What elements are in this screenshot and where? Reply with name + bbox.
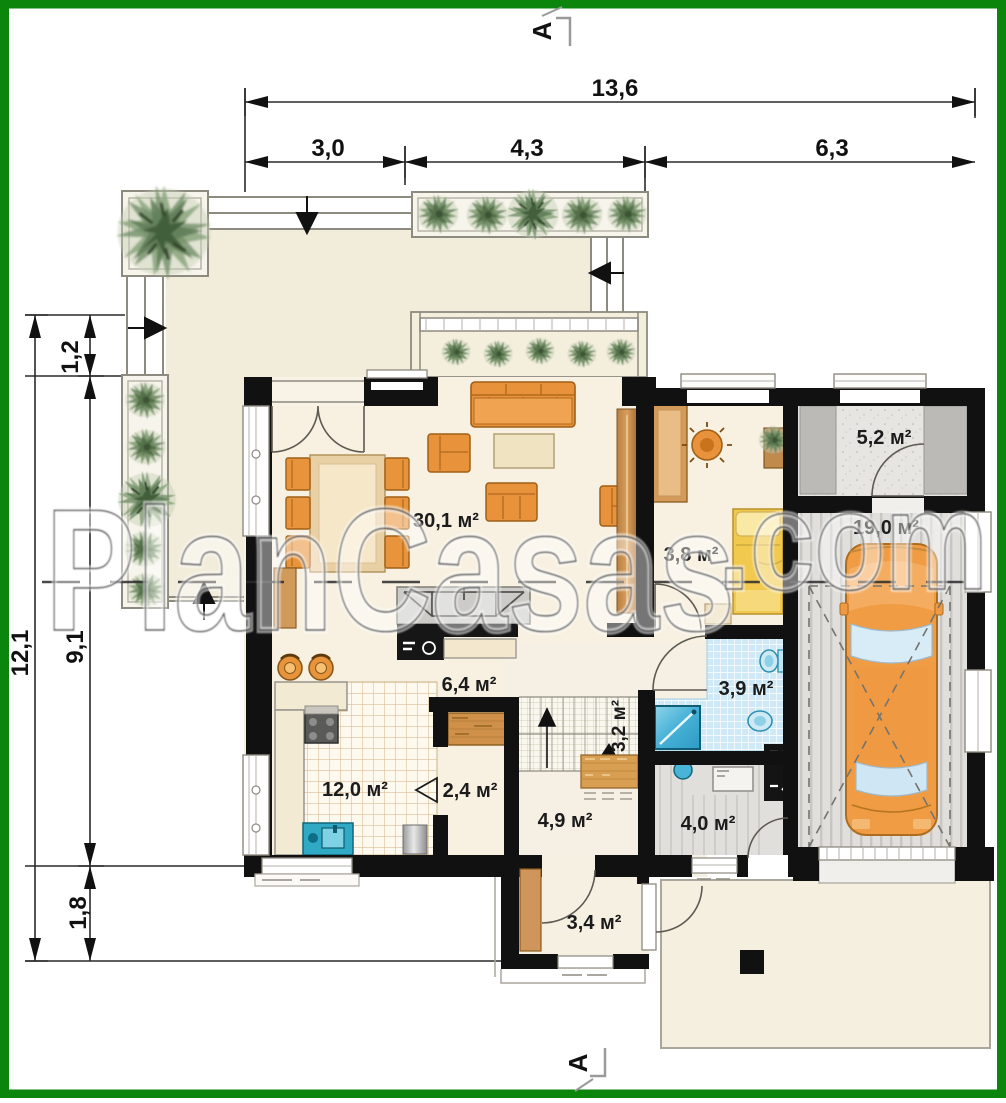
svg-text:3,0: 3,0 xyxy=(311,135,344,162)
svg-text:4,3: 4,3 xyxy=(510,135,543,162)
svg-text:.com: .com xyxy=(718,462,988,619)
svg-text:3,4 м²: 3,4 м² xyxy=(567,912,622,934)
svg-text:6,4 м²: 6,4 м² xyxy=(442,674,497,696)
svg-text:12,0 м²: 12,0 м² xyxy=(322,779,388,801)
svg-text:A: A xyxy=(563,1053,593,1072)
svg-text:3,2 м²: 3,2 м² xyxy=(609,700,630,752)
svg-text:PlanCasas: PlanCasas xyxy=(45,472,735,667)
svg-text:2,4 м²: 2,4 м² xyxy=(443,780,498,802)
svg-text:4,9 м²: 4,9 м² xyxy=(538,810,593,832)
svg-text:6,3: 6,3 xyxy=(815,135,848,162)
svg-text:A: A xyxy=(527,21,557,40)
svg-text:3,9 м²: 3,9 м² xyxy=(719,678,774,700)
svg-text:1,2: 1,2 xyxy=(57,340,84,373)
svg-text:5,2 м²: 5,2 м² xyxy=(857,427,912,449)
svg-text:1,8: 1,8 xyxy=(65,896,92,929)
svg-text:13,6: 13,6 xyxy=(592,75,639,102)
svg-text:12,1: 12,1 xyxy=(7,630,34,677)
svg-text:4,0 м²: 4,0 м² xyxy=(681,813,736,835)
